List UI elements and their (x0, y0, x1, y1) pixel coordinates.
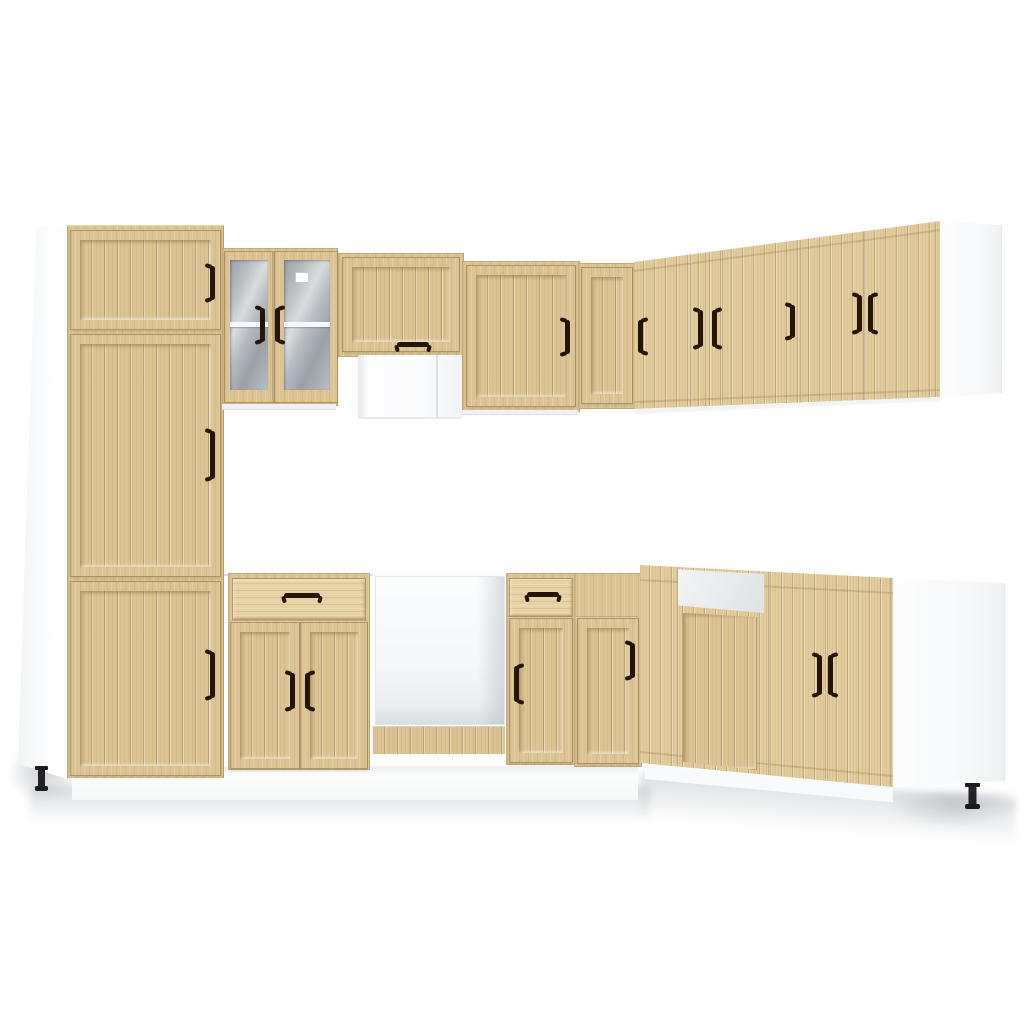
tall-top-door-panel (80, 240, 211, 320)
chimney-shade-line (436, 355, 438, 417)
wall-cabinet-2 (578, 263, 636, 409)
tall-cabinet-side-panel (17, 225, 67, 779)
oven-housing-base-strip (373, 726, 505, 754)
right-wall-seam-5 (864, 231, 866, 400)
right-wall-pair2-handle-right (868, 295, 873, 332)
right-wall-pair1-handle-left (698, 310, 703, 347)
hood-door-handle (397, 342, 429, 347)
base-2-door-handle (514, 666, 519, 702)
oven-cavity-opening (375, 576, 505, 725)
hood-chimney (358, 355, 462, 419)
base-1-door-left (230, 622, 300, 769)
oven-cavity-floor-shade (376, 702, 504, 724)
corner-base-door-handle (630, 643, 635, 678)
right-wall-single-handle (790, 305, 795, 338)
glass-door-left (224, 251, 274, 403)
right-wall-pair2-handle-left (857, 295, 862, 332)
wall-cabinet-2-panel (591, 277, 623, 394)
wall-cabinet-2-door (581, 267, 633, 404)
floor-shadow-end-panel (890, 792, 1020, 828)
corner-base-door-panel (587, 628, 629, 754)
right-wall-seam-6 (935, 222, 937, 397)
range-hood-cabinet (338, 253, 464, 357)
kitchen-cabinet-set-photo (0, 0, 1024, 1024)
right-wall-seam-3 (722, 250, 724, 406)
glass-door-left-handle (260, 308, 265, 342)
tall-cabinet-middle-door (70, 334, 221, 577)
wall-cabinet-1-door (466, 265, 576, 407)
corner-base-door (577, 618, 639, 764)
sink-top-inset (678, 566, 764, 613)
right-base-pair-handle-right (828, 655, 833, 695)
right-wall-seam-1 (690, 254, 692, 407)
base-1-door-right (300, 622, 368, 769)
base-2-drawer (509, 578, 573, 617)
right-cabinet-leg (965, 783, 980, 809)
base-cabinet-1 (228, 573, 370, 770)
base-1-door-left-handle (290, 673, 295, 709)
glass-hinge-clip (295, 272, 309, 283)
tall-middle-door-handle (210, 431, 215, 479)
glass-wall-cabinet (222, 248, 338, 406)
base-1-door-left-panel (240, 632, 290, 759)
base-cabinet-2 (506, 573, 576, 765)
right-base-pair-handle-left (817, 655, 822, 695)
base-2-door (509, 618, 573, 763)
wall-cabinet-1-panel (476, 275, 566, 397)
oven-housing (372, 573, 506, 755)
right-wall-run (634, 221, 940, 414)
base-1-door-right-handle (305, 673, 310, 709)
right-base-run (640, 565, 893, 787)
wall-cabinet-1-underside (462, 410, 578, 415)
tall-middle-door-panel (80, 344, 211, 567)
glass-cabinet-underside (222, 404, 336, 410)
tall-bottom-door-handle (210, 652, 215, 698)
sink-base-door (683, 613, 757, 770)
wall-cabinet-1 (462, 261, 580, 412)
base-1-drawer (232, 578, 366, 620)
right-base-seam-1 (768, 572, 770, 775)
glass-cabinet-shelf-right (284, 322, 330, 327)
tall-top-door-handle (210, 266, 215, 300)
base-2-door-panel (519, 628, 563, 753)
tall-cabinet-top-door (70, 230, 221, 330)
right-wall-seam-2 (705, 252, 707, 406)
glass-door-right (274, 251, 338, 403)
right-wall-top-rail (634, 229, 940, 272)
base-2-drawer-handle (527, 592, 559, 597)
tall-bottom-door-panel (80, 591, 211, 766)
tall-cabinet-front (67, 225, 224, 778)
base-1-drawer-handle (284, 593, 320, 598)
corner-wall-door-handle (638, 320, 643, 353)
right-wall-pair1-handle-right (712, 310, 717, 347)
hood-cabinet-door (342, 257, 460, 352)
left-cabinet-leg (35, 766, 48, 791)
wall-end-panel (940, 221, 1002, 398)
tall-cabinet-bottom-door (70, 581, 221, 776)
right-base-seam-3 (890, 578, 892, 786)
wall-cabinet-1-handle (565, 320, 570, 354)
corner-base-front (574, 573, 642, 767)
base-1-door-right-panel (310, 632, 358, 759)
right-wall-seam-4 (800, 240, 802, 403)
hood-door-panel (352, 267, 450, 342)
glass-door-right-handle (275, 308, 280, 342)
base-end-panel (893, 578, 1005, 787)
